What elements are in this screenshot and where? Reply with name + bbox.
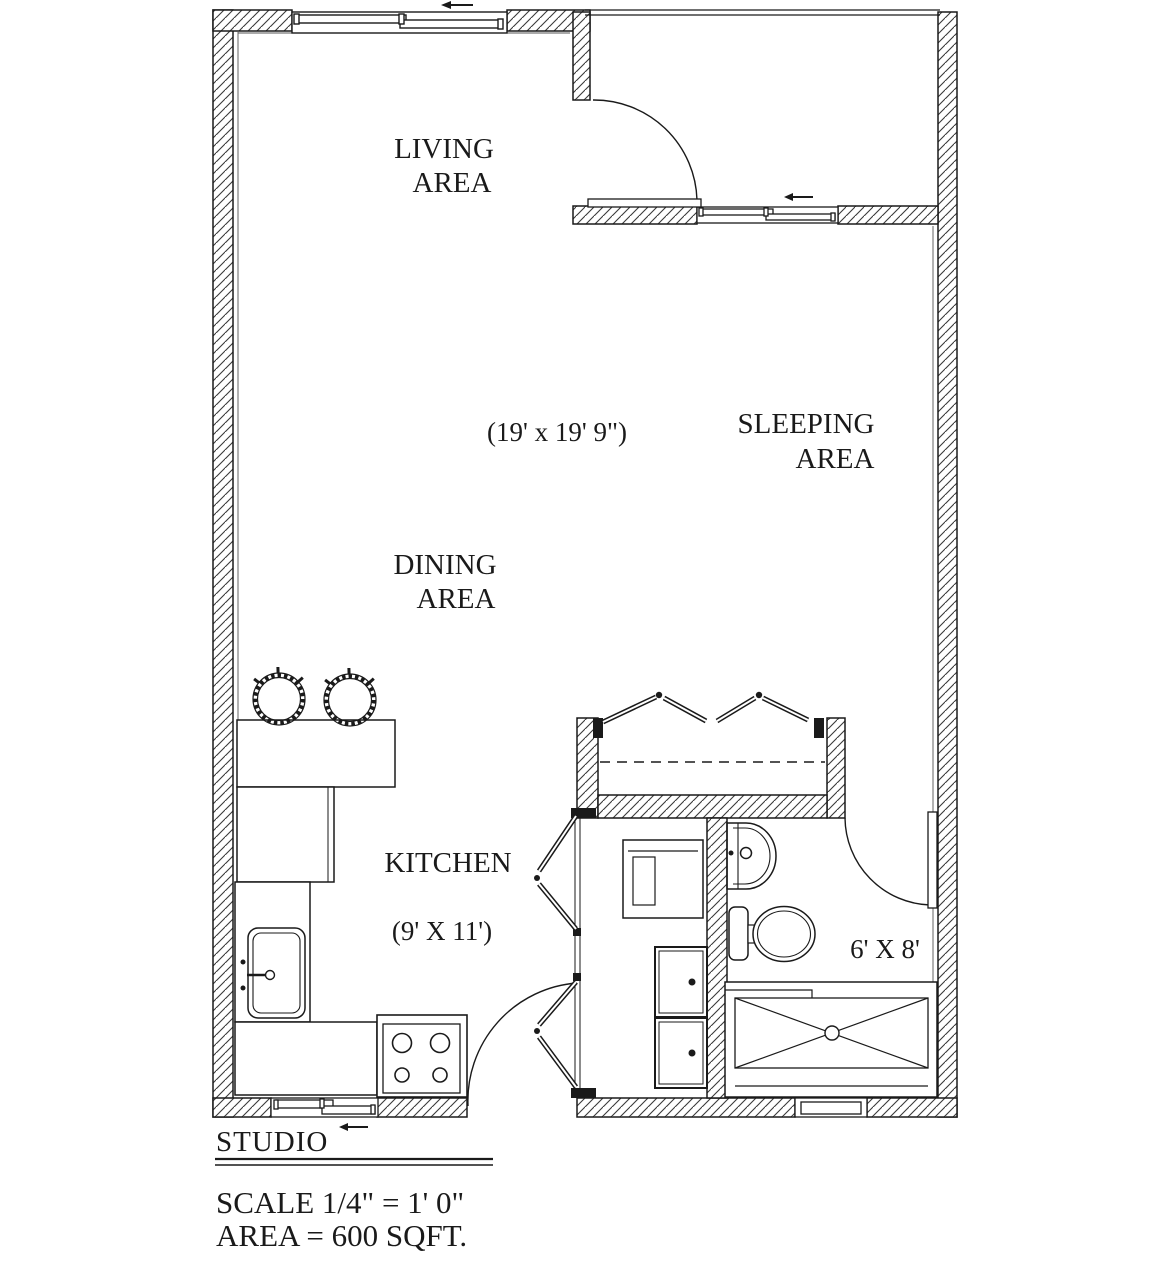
label-main-dims: (19' x 19' 9") bbox=[487, 417, 627, 447]
washer bbox=[623, 840, 703, 918]
tub-drain bbox=[825, 1026, 839, 1040]
wall-closet-right-pillar bbox=[827, 718, 845, 818]
vestibule-top-edge bbox=[585, 10, 940, 15]
vanity-sink bbox=[727, 823, 776, 889]
arrow-top-window bbox=[441, 1, 473, 9]
label-dining-line2: AREA bbox=[417, 583, 496, 615]
toilet bbox=[729, 907, 815, 962]
window-kitchen bbox=[271, 1098, 378, 1117]
utility-room bbox=[534, 808, 707, 1098]
burner bbox=[393, 1034, 412, 1053]
bathroom-door bbox=[845, 812, 937, 908]
entry-door bbox=[588, 100, 701, 207]
bar-counter bbox=[237, 720, 395, 787]
label-dining-line1: DINING bbox=[393, 549, 496, 581]
faucet-icon bbox=[741, 848, 752, 859]
faucet-icon bbox=[266, 971, 275, 980]
closet-jamb-right bbox=[814, 718, 824, 738]
window-bathroom bbox=[795, 1098, 867, 1117]
wall-left bbox=[213, 10, 233, 1117]
wall-closet-bottom bbox=[598, 795, 827, 818]
cabinet-knob bbox=[689, 979, 696, 986]
wall-vestibule-stub bbox=[573, 12, 590, 100]
arrow-vestibule-window bbox=[784, 193, 813, 201]
kitchen-sink bbox=[241, 928, 306, 1018]
wall-inner-faces bbox=[238, 32, 933, 1095]
burner bbox=[431, 1034, 450, 1053]
label-sleeping-line2: AREA bbox=[796, 443, 875, 475]
window-top bbox=[292, 12, 507, 33]
counter-bottom-run bbox=[235, 1022, 377, 1095]
interior-walls bbox=[573, 206, 938, 1098]
label-kitchen: KITCHEN bbox=[384, 847, 511, 879]
wall-bottom-4 bbox=[867, 1098, 957, 1117]
label-living-line2: AREA bbox=[413, 167, 492, 199]
floor-plan-drawing: LIVING AREA (19' x 19' 9") SLEEPING AREA… bbox=[0, 0, 1163, 1280]
plan-scale: SCALE 1/4" = 1' 0" bbox=[216, 1185, 464, 1220]
label-bathroom-dims: 6' X 8' bbox=[850, 934, 920, 964]
cabinet-knob bbox=[689, 1050, 696, 1057]
counter-mid bbox=[237, 787, 334, 882]
wall-bath-divider bbox=[707, 818, 727, 1098]
burner bbox=[395, 1068, 409, 1082]
title-block: STUDIO SCALE 1/4" = 1' 0" AREA = 600 SQF… bbox=[215, 1126, 493, 1253]
plan-area: AREA = 600 SQFT. bbox=[216, 1218, 467, 1253]
window-vestibule bbox=[697, 207, 838, 223]
label-kitchen-dims: (9' X 11') bbox=[392, 916, 492, 946]
utility-door-track bbox=[575, 818, 580, 1098]
wall-right bbox=[938, 12, 957, 1117]
faucet-dot bbox=[729, 851, 734, 856]
wall-vestibule-bottom-left bbox=[573, 206, 697, 224]
plan-title: STUDIO bbox=[216, 1126, 328, 1158]
label-living-line1: LIVING bbox=[394, 133, 494, 165]
wall-vestibule-bottom-right bbox=[838, 206, 938, 224]
stove bbox=[377, 1015, 467, 1097]
label-sleeping-line1: SLEEPING bbox=[738, 408, 875, 440]
cabinet-upper bbox=[655, 947, 707, 1017]
floor-plan-page: LIVING AREA (19' x 19' 9") SLEEPING AREA… bbox=[0, 0, 1163, 1280]
wall-bottom-3 bbox=[577, 1098, 795, 1117]
bar-stool-2 bbox=[324, 668, 376, 726]
closet-bifold-doors bbox=[603, 692, 808, 722]
arrow-kitchen-window bbox=[339, 1123, 368, 1131]
utility-jamb-bottom bbox=[571, 1088, 596, 1098]
exterior-walls bbox=[213, 10, 957, 1117]
burner bbox=[433, 1068, 447, 1082]
wall-bottom-2 bbox=[377, 1098, 467, 1117]
kitchen-fixtures bbox=[235, 667, 467, 1097]
bathtub bbox=[725, 982, 937, 1097]
bar-stool-1 bbox=[253, 667, 305, 725]
utility-stop-2 bbox=[573, 973, 581, 981]
closet-jamb-left bbox=[593, 718, 603, 738]
wall-bottom-1 bbox=[213, 1098, 271, 1117]
cabinet-lower bbox=[655, 1018, 707, 1088]
closet bbox=[593, 692, 825, 762]
wall-top-left bbox=[213, 10, 292, 31]
utility-bifold-doors bbox=[534, 816, 576, 1087]
